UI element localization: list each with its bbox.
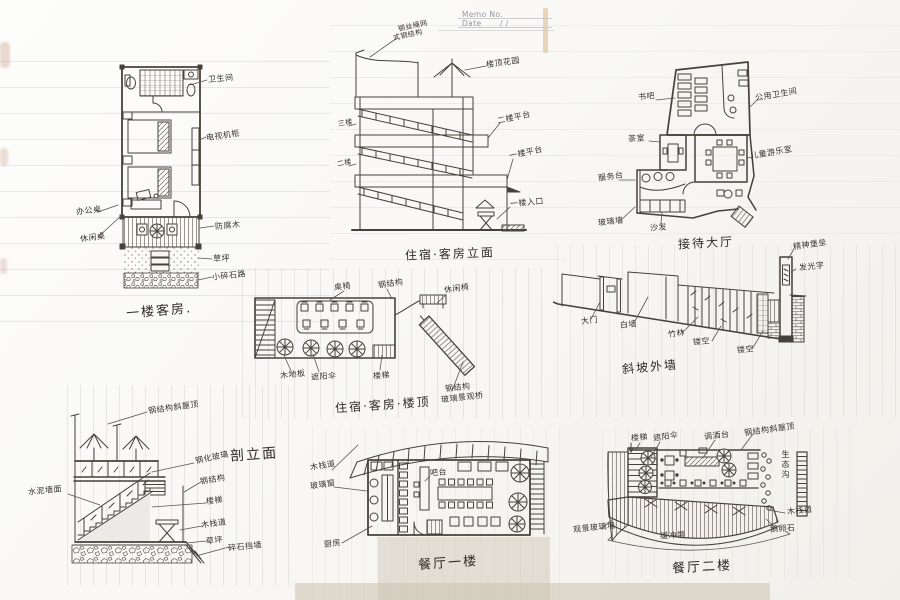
- label-eco-ditch: 生态沟: [781, 450, 790, 480]
- label-hollow-1: 镂空: [693, 336, 711, 347]
- sketch-outer-wall-elevation: [553, 240, 900, 380]
- label-section-lawn: 草坪: [206, 535, 224, 546]
- edge-smudge-1: [0, 42, 10, 68]
- label-hollow-2: 镂空: [737, 344, 755, 355]
- title-restaurant-f1: 餐厅一楼: [417, 550, 478, 573]
- title-section: 剖立面: [229, 442, 278, 465]
- label-parasol: 遮阳伞: [311, 371, 337, 382]
- label-preserved-wood: 防腐木: [215, 220, 241, 231]
- sketch-restaurant-f1-plan: [330, 418, 570, 568]
- label-white-wall: 白墙: [620, 319, 638, 330]
- title-guesthouse-elevation: 住宿·客房立面: [405, 243, 495, 263]
- label-f1-bar: 吧台: [430, 467, 448, 477]
- label-sofa: 沙发: [650, 222, 668, 232]
- label-buffer-zone: 缓冲带: [660, 530, 686, 540]
- label-cobbles: 鹅卵石: [770, 523, 796, 534]
- sketch-sheet-photo: Memo No. Date / /: [0, 0, 900, 600]
- label-book-bar: 书吧: [638, 91, 656, 101]
- edge-smudge-2: [0, 148, 8, 166]
- sketch-guest-room-plan: [95, 50, 225, 310]
- sketch-reception-plan: [598, 48, 766, 234]
- label-bathroom: 卫生间: [208, 73, 234, 84]
- label-tea-room: 茶室: [628, 134, 645, 144]
- label-f2-stairs: 楼梯: [631, 432, 649, 443]
- label-tables: 桌椅: [334, 281, 352, 292]
- sketch-guesthouse-elevation: [330, 15, 545, 260]
- title-restaurant-f2: 餐厅二楼: [672, 554, 733, 576]
- edge-smudge-3: [0, 258, 7, 274]
- title-reception-plan: 接待大厅: [678, 233, 735, 253]
- paper-edge-band: [295, 583, 770, 600]
- label-lawn: 草坪: [213, 254, 230, 263]
- label-roof-stairs: 楼梯: [373, 370, 391, 380]
